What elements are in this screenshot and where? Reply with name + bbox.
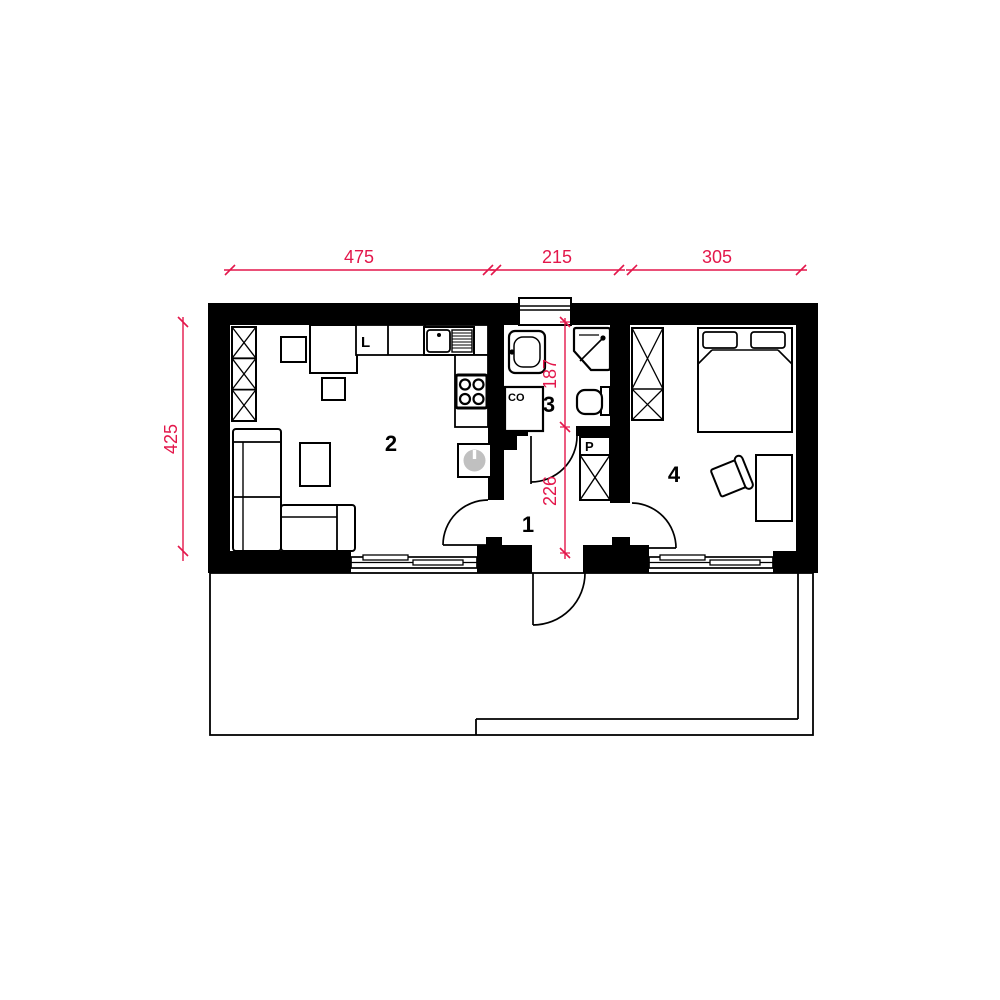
room-label-living: 2 — [385, 431, 397, 456]
dimension-inner-226-label: 226 — [540, 476, 560, 506]
room-label-bedroom: 4 — [668, 462, 681, 487]
floor-plan-page: 1 2 3 4 L CO P 475 215 305 425 — [0, 0, 1000, 1000]
kitchen-sink — [424, 327, 474, 355]
bedroom-furniture — [632, 328, 792, 521]
corner-sofa — [233, 429, 355, 551]
dimension-top-475-label: 475 — [344, 247, 374, 267]
partition-bath-door-pier — [504, 436, 517, 450]
pillow-left — [703, 332, 737, 348]
dimension-inner-vertical — [560, 317, 570, 559]
toilet-icon — [577, 387, 610, 415]
desk — [756, 455, 792, 521]
dimension-top-215-label: 215 — [542, 247, 572, 267]
wardrobe-living — [232, 327, 256, 421]
wall-left — [208, 303, 230, 573]
floor-plan-drawing: 1 2 3 4 L CO P 475 215 305 425 — [0, 0, 1000, 1000]
pillow-right — [751, 332, 785, 348]
door-living-hall — [443, 500, 488, 545]
dining-chair-left — [281, 337, 306, 362]
dining-table — [310, 325, 357, 373]
partition-hall-bedroom — [610, 325, 630, 503]
wall-bottom-door-jamb-left — [477, 545, 532, 573]
dining-chair-bottom — [322, 378, 345, 400]
wall-bottom-door-jamb-right — [583, 545, 649, 573]
dimension-top-305-label: 305 — [702, 247, 732, 267]
dimension-inner-187-label: 187 — [540, 359, 560, 389]
heating-unit-label: CO — [508, 392, 525, 404]
room-label-bathroom: 3 — [543, 392, 555, 417]
bed — [698, 328, 792, 432]
wall-jamb-stub-left — [486, 537, 502, 545]
water-heater-icon — [458, 444, 491, 477]
washer-label: P — [585, 439, 594, 454]
door-hall-bedroom — [632, 503, 676, 548]
shower-icon — [574, 328, 610, 370]
wall-right — [796, 303, 818, 573]
wall-top — [208, 303, 818, 325]
fridge-label: L — [361, 334, 370, 351]
wall-jamb-stub-right — [612, 537, 630, 545]
terrace-outline — [210, 573, 813, 735]
wardrobe-bedroom — [632, 328, 663, 420]
desk-chair — [709, 455, 754, 500]
window-living — [351, 555, 477, 568]
washer-x-box — [580, 455, 610, 500]
terrace — [210, 573, 813, 735]
door-entrance — [533, 573, 585, 625]
wall-bottom-right — [773, 551, 818, 573]
dimension-left-425-label: 425 — [161, 424, 181, 454]
window-bedroom — [649, 555, 773, 568]
stove-icon — [456, 375, 487, 408]
room-label-hall: 1 — [522, 512, 534, 537]
wall-bottom-left — [208, 551, 351, 573]
coffee-table — [300, 443, 330, 486]
